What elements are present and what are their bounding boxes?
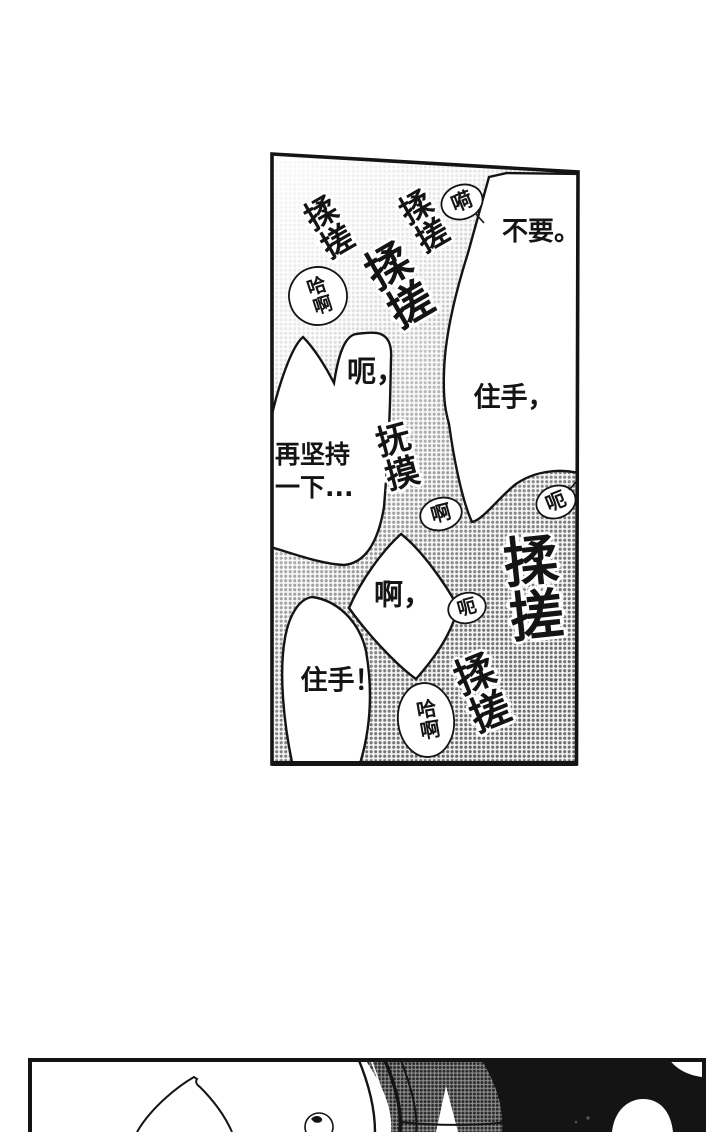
dialogue-no: 不要。: [502, 218, 580, 246]
manga-panel-main: 揉搓 揉搓 揉搓 抚摸 揉搓 揉搓 不要。 呃， 住手， 再坚持 一下... 啊…: [270, 151, 580, 768]
dialogue-urk: 呃，: [347, 356, 405, 387]
dialogue-stop-exclaim: 住手！: [301, 666, 382, 695]
dialogue-ah-comma: 啊，: [374, 579, 432, 610]
panel-bottom-artwork: [28, 1058, 706, 1132]
dialogue-hold-on: 再坚持 一下...: [275, 439, 354, 504]
dialogue-stop-comma: 住手，: [474, 383, 555, 412]
manga-page: { "page": { "background": "#ffffff", "in…: [0, 0, 720, 1132]
dialogue-hold-on-line1: 再坚持: [275, 439, 354, 472]
hair-speck: [575, 1121, 577, 1123]
manga-panel-bottom: [28, 1058, 706, 1132]
sfx-rub-right-large: 揉搓: [493, 530, 562, 645]
dialogue-hold-on-line2: 一下...: [275, 472, 354, 505]
hair-speck: [586, 1116, 589, 1119]
